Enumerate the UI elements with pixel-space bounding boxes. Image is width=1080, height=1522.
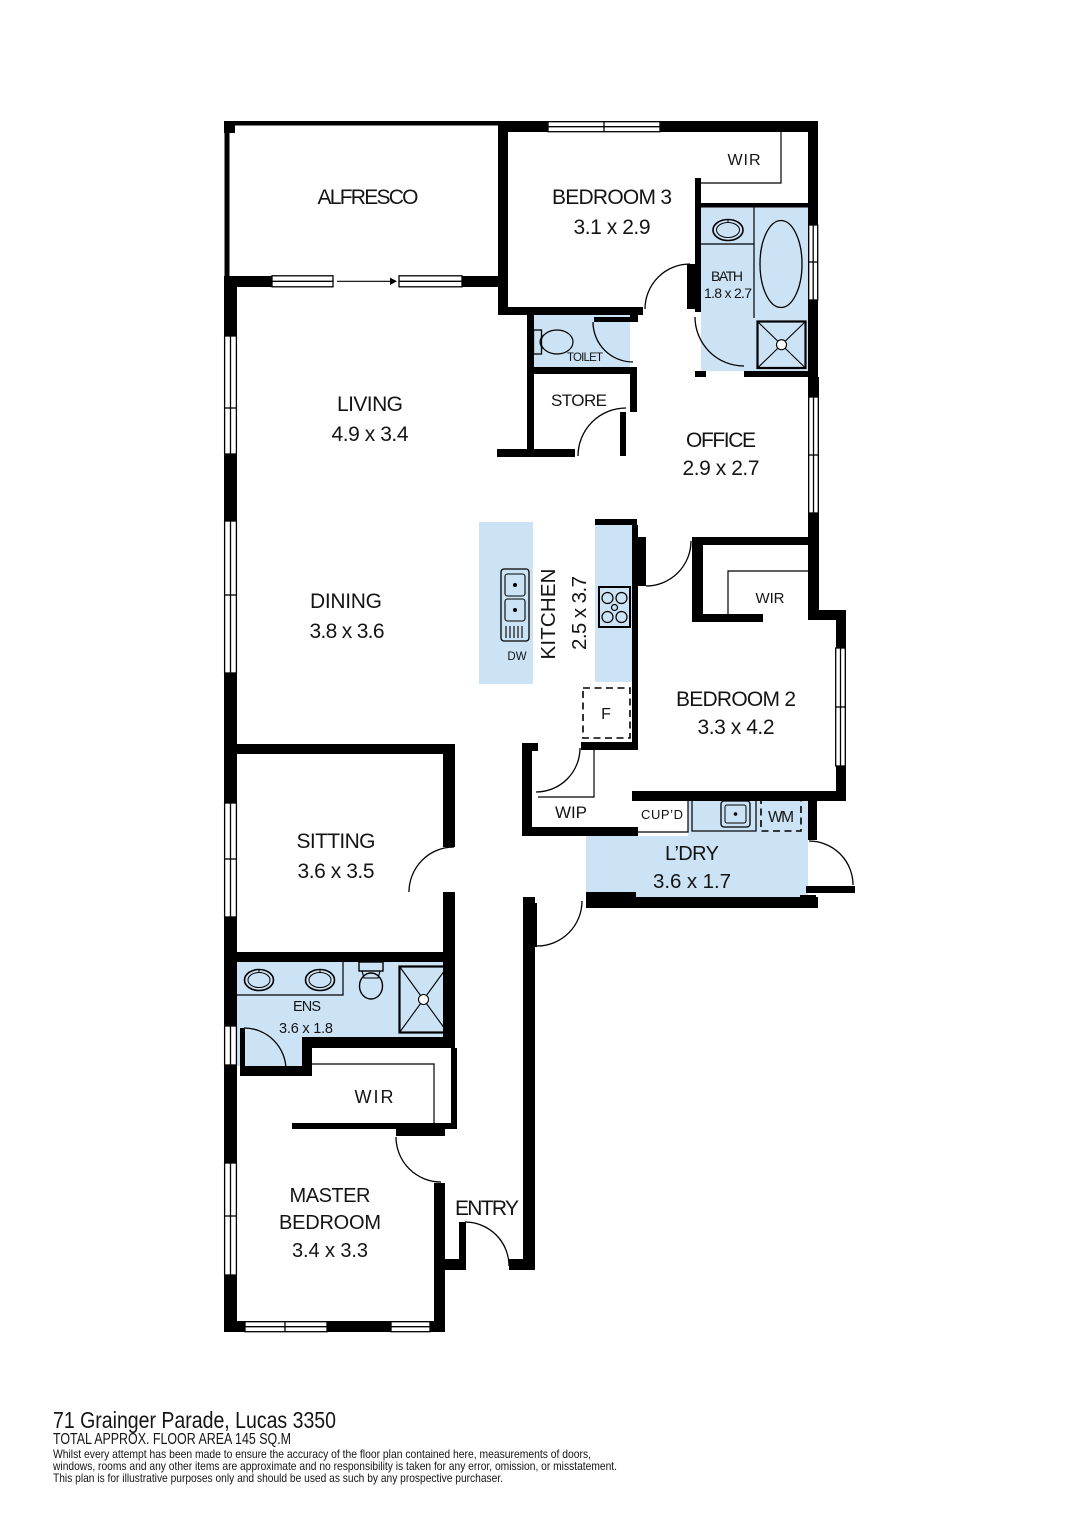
svg-text:3.6 x 1.8: 3.6 x 1.8 [279, 1021, 333, 1037]
svg-text:TOTAL APPROX. FLOOR AREA 145 S: TOTAL APPROX. FLOOR AREA 145 SQ.M [53, 1431, 291, 1448]
svg-text:L’DRY: L’DRY [665, 843, 719, 865]
svg-text:OFFICE: OFFICE [686, 429, 756, 452]
svg-text:WIR: WIR [728, 152, 761, 169]
svg-text:3.6 x 1.7: 3.6 x 1.7 [653, 870, 731, 893]
svg-text:BATH: BATH [711, 268, 743, 284]
svg-text:WIR: WIR [355, 1087, 394, 1107]
svg-text:SITTING: SITTING [297, 830, 376, 853]
svg-text:2.5 x 3.7: 2.5 x 3.7 [568, 576, 591, 650]
svg-text:TOILET: TOILET [567, 352, 603, 364]
svg-text:WIP: WIP [555, 803, 587, 822]
svg-text:3.3 x 4.2: 3.3 x 4.2 [698, 716, 775, 739]
svg-text:ENS: ENS [293, 999, 321, 1015]
svg-text:3.4 x 3.3: 3.4 x 3.3 [292, 1240, 368, 1262]
svg-text:ENTRY: ENTRY [455, 1197, 519, 1220]
svg-text:BEDROOM 2: BEDROOM 2 [676, 688, 796, 711]
svg-text:MASTER: MASTER [290, 1185, 371, 1207]
svg-text:KITCHEN: KITCHEN [537, 569, 560, 660]
svg-text:This plan is for illustrative: This plan is for illustrative purposes o… [53, 1471, 503, 1485]
svg-text:WM: WM [768, 809, 794, 826]
svg-text:3.8 x 3.6: 3.8 x 3.6 [310, 620, 385, 643]
svg-text:F: F [601, 706, 611, 723]
svg-text:2.9 x 2.7: 2.9 x 2.7 [683, 457, 760, 480]
svg-text:71 Grainger Parade, Lucas 3350: 71 Grainger Parade, Lucas 3350 [53, 1407, 336, 1433]
svg-text:CUP’D: CUP’D [641, 807, 683, 822]
svg-text:ALFRESCO: ALFRESCO [318, 186, 419, 209]
svg-text:BEDROOM 3: BEDROOM 3 [552, 186, 672, 209]
svg-text:DW: DW [507, 651, 526, 663]
svg-text:WIR: WIR [756, 590, 785, 607]
svg-text:BEDROOM: BEDROOM [279, 1212, 381, 1234]
svg-text:3.6 x 3.5: 3.6 x 3.5 [298, 860, 375, 883]
svg-text:DINING: DINING [310, 590, 382, 613]
svg-text:4.9 x 3.4: 4.9 x 3.4 [332, 423, 409, 446]
svg-text:LIVING: LIVING [337, 393, 403, 416]
svg-text:1.8 x 2.7: 1.8 x 2.7 [704, 285, 752, 301]
svg-text:STORE: STORE [551, 391, 607, 410]
svg-text:3.1 x 2.9: 3.1 x 2.9 [574, 216, 651, 239]
